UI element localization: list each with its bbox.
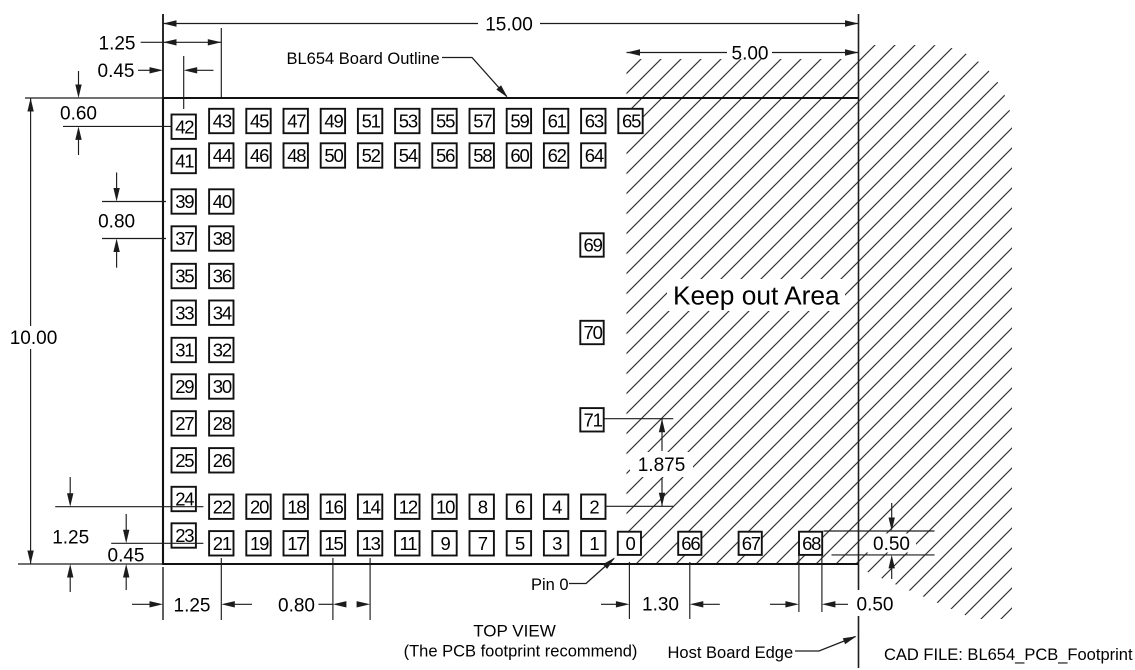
svg-text:15: 15	[324, 533, 343, 554]
svg-text:5.00: 5.00	[732, 44, 769, 65]
svg-text:41: 41	[175, 151, 194, 172]
svg-text:8: 8	[478, 496, 488, 517]
svg-text:60: 60	[510, 145, 529, 166]
svg-text:20: 20	[250, 496, 269, 517]
svg-text:3: 3	[552, 533, 562, 554]
svg-text:51: 51	[362, 111, 381, 132]
svg-text:0: 0	[625, 533, 635, 554]
svg-text:39: 39	[175, 191, 194, 212]
svg-text:14: 14	[362, 496, 381, 517]
svg-text:1.25: 1.25	[174, 596, 211, 617]
svg-text:13: 13	[362, 533, 381, 554]
svg-text:65: 65	[622, 111, 641, 132]
svg-text:44: 44	[213, 145, 232, 166]
svg-text:5: 5	[515, 533, 525, 554]
svg-text:69: 69	[584, 235, 603, 256]
svg-text:71: 71	[584, 409, 603, 430]
svg-text:52: 52	[362, 145, 381, 166]
svg-text:67: 67	[742, 533, 761, 554]
svg-text:61: 61	[548, 111, 567, 132]
svg-text:10: 10	[436, 496, 455, 517]
svg-text:35: 35	[175, 266, 194, 287]
svg-text:17: 17	[287, 533, 306, 554]
svg-text:70: 70	[584, 322, 603, 343]
svg-text:7: 7	[478, 533, 488, 554]
svg-text:62: 62	[548, 145, 567, 166]
svg-text:CAD FILE: BL654_PCB_Footprint: CAD FILE: BL654_PCB_Footprint	[884, 646, 1133, 664]
svg-text:68: 68	[802, 533, 821, 554]
svg-text:BL654 Board Outline: BL654 Board Outline	[287, 50, 440, 68]
svg-text:6: 6	[515, 496, 525, 517]
svg-text:1.30: 1.30	[642, 595, 679, 616]
svg-text:0.45: 0.45	[98, 61, 135, 82]
svg-text:0.50: 0.50	[857, 595, 894, 616]
svg-text:42: 42	[175, 116, 194, 137]
svg-text:0.45: 0.45	[108, 546, 145, 567]
svg-text:11: 11	[399, 533, 417, 554]
svg-text:1.25: 1.25	[99, 34, 136, 55]
svg-text:31: 31	[175, 340, 194, 361]
svg-text:64: 64	[585, 145, 604, 166]
svg-text:12: 12	[399, 496, 418, 517]
svg-text:18: 18	[287, 496, 306, 517]
svg-text:37: 37	[175, 228, 194, 249]
svg-text:19: 19	[250, 533, 269, 554]
svg-text:48: 48	[287, 145, 306, 166]
svg-text:47: 47	[287, 111, 306, 132]
svg-text:TOP VIEW: TOP VIEW	[473, 622, 556, 641]
svg-text:43: 43	[213, 111, 232, 132]
svg-text:55: 55	[436, 111, 455, 132]
svg-text:50: 50	[324, 145, 343, 166]
svg-text:29: 29	[175, 376, 194, 397]
svg-text:45: 45	[250, 111, 269, 132]
svg-text:1.25: 1.25	[52, 528, 89, 549]
svg-text:25: 25	[175, 450, 194, 471]
svg-text:10.00: 10.00	[10, 328, 58, 349]
svg-text:2: 2	[589, 496, 599, 517]
svg-text:27: 27	[175, 413, 194, 434]
svg-text:46: 46	[250, 145, 269, 166]
svg-text:4: 4	[552, 496, 562, 517]
svg-text:58: 58	[473, 145, 492, 166]
svg-text:38: 38	[213, 228, 232, 249]
svg-text:33: 33	[175, 302, 194, 323]
svg-text:63: 63	[585, 111, 604, 132]
svg-text:15.00: 15.00	[485, 15, 533, 36]
svg-text:26: 26	[213, 450, 232, 471]
svg-text:36: 36	[213, 266, 232, 287]
svg-text:59: 59	[510, 111, 529, 132]
svg-text:Pin 0: Pin 0	[531, 576, 569, 594]
svg-text:40: 40	[213, 191, 232, 212]
svg-text:21: 21	[213, 533, 232, 554]
svg-text:0.80: 0.80	[278, 596, 315, 617]
svg-text:53: 53	[399, 111, 418, 132]
svg-text:32: 32	[213, 340, 232, 361]
svg-text:Keep out Area: Keep out Area	[673, 281, 840, 311]
svg-text:57: 57	[473, 111, 492, 132]
svg-text:0.50: 0.50	[873, 534, 910, 555]
svg-text:16: 16	[324, 496, 343, 517]
svg-text:28: 28	[213, 413, 232, 434]
svg-text:54: 54	[399, 145, 418, 166]
svg-text:0.80: 0.80	[98, 212, 135, 233]
svg-text:(The PCB footprint recommend): (The PCB footprint recommend)	[404, 643, 638, 661]
svg-text:66: 66	[681, 533, 700, 554]
svg-text:1.875: 1.875	[638, 455, 686, 476]
svg-text:Host Board Edge: Host Board Edge	[668, 644, 794, 662]
svg-text:0.60: 0.60	[60, 104, 97, 125]
svg-text:1: 1	[589, 533, 599, 554]
svg-text:22: 22	[213, 496, 232, 517]
svg-text:56: 56	[436, 145, 455, 166]
svg-text:49: 49	[324, 111, 343, 132]
svg-text:34: 34	[213, 302, 232, 323]
svg-text:9: 9	[441, 533, 451, 554]
svg-text:30: 30	[213, 376, 232, 397]
